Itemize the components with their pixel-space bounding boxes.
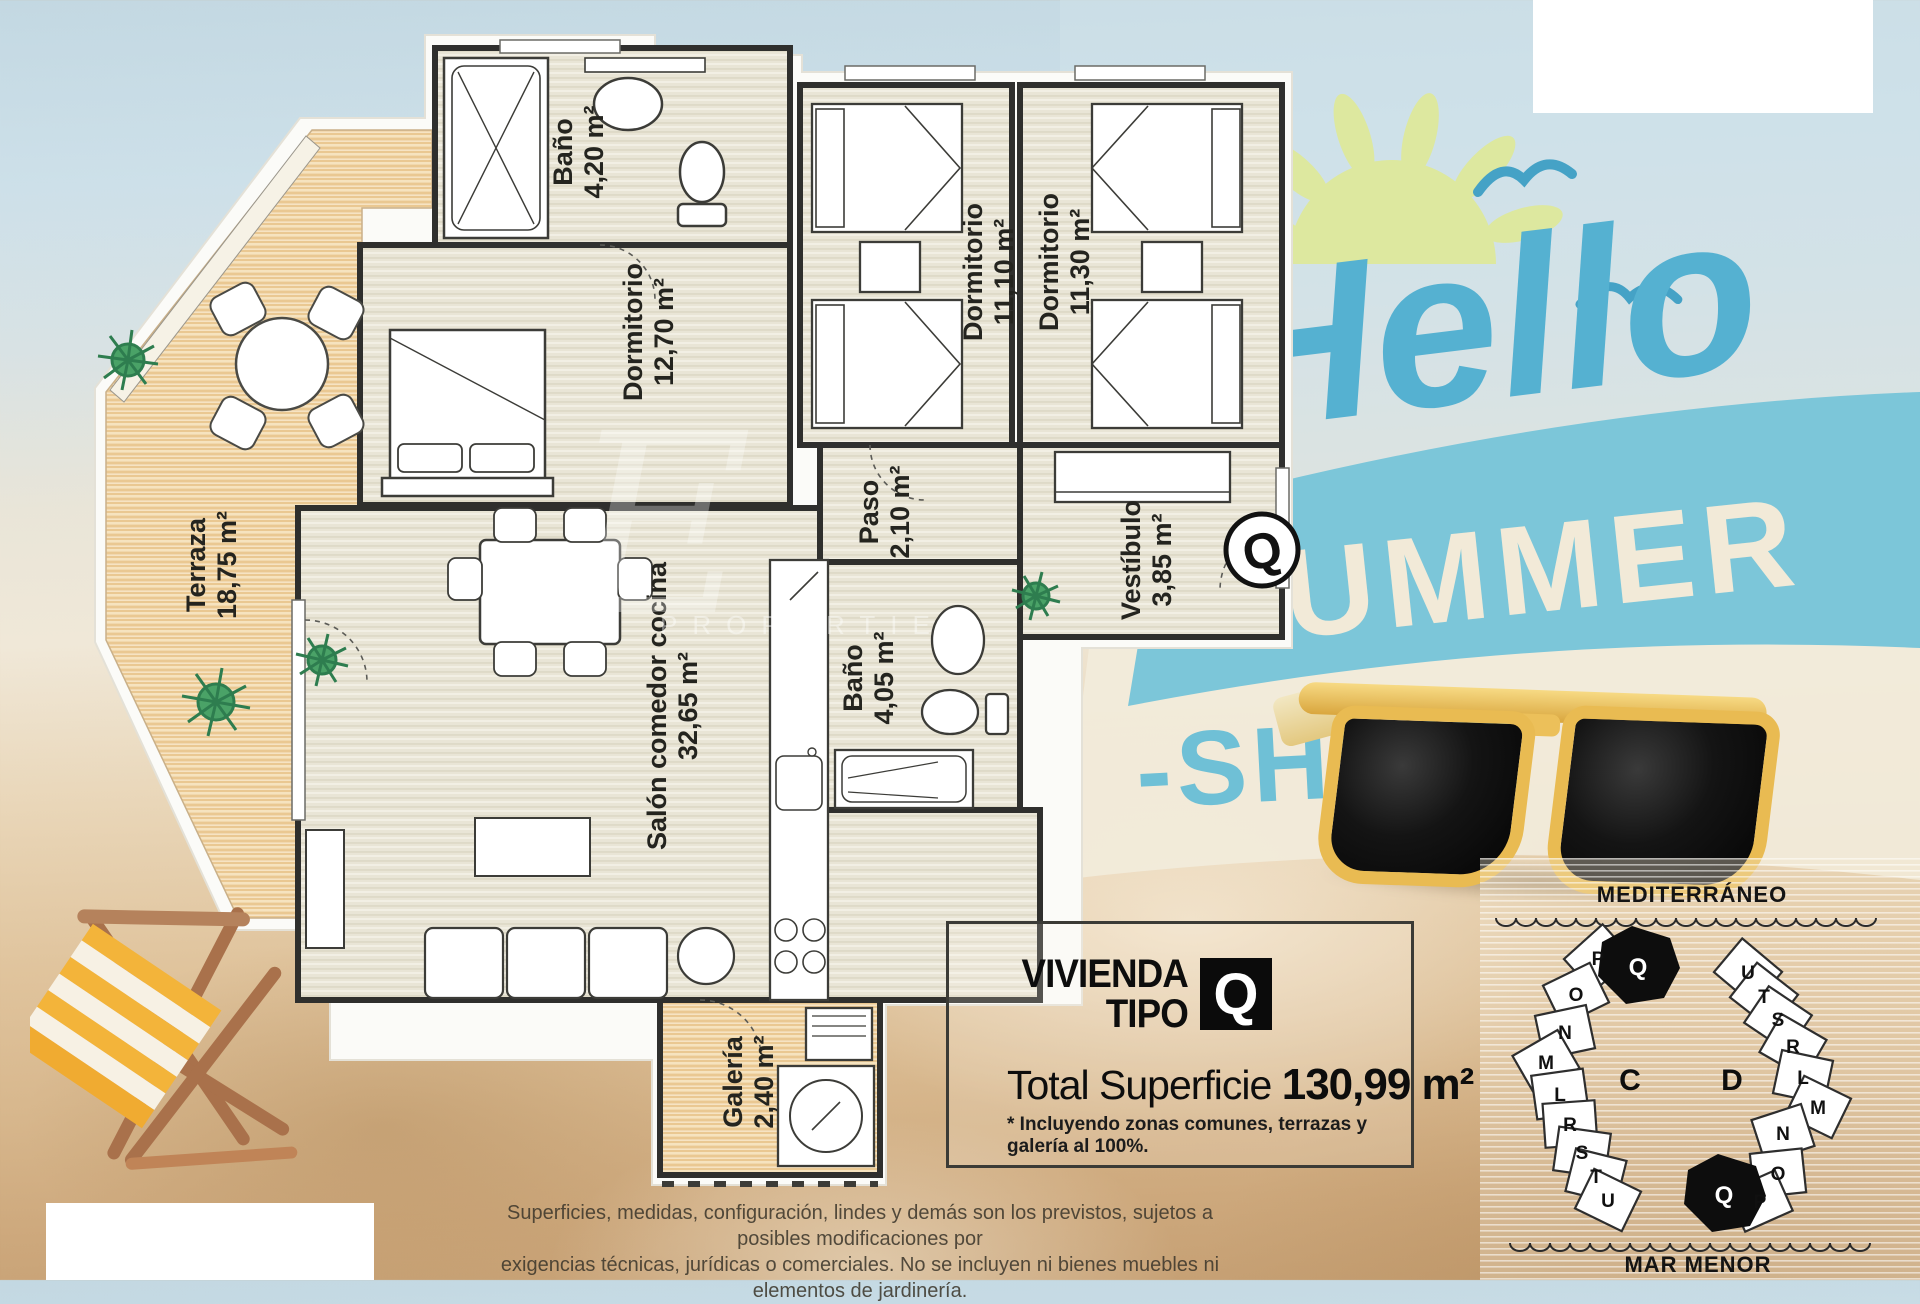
logo-placeholder-top-right: [1533, 0, 1873, 113]
svg-text:U: U: [1601, 1191, 1615, 1212]
disclaimer-line2: exigencias técnicas, jurídicas o comerci…: [470, 1252, 1250, 1304]
svg-text:S: S: [1772, 1010, 1785, 1031]
kitchen-counter: [770, 560, 828, 1000]
svg-text:N: N: [1558, 1023, 1572, 1044]
room-paso: [820, 445, 1020, 562]
svg-text:R: R: [1786, 1037, 1800, 1058]
sea-bottom-label: MAR MENOR: [1624, 1252, 1771, 1277]
logo-placeholder-bottom-left: [46, 1203, 374, 1280]
info-footnote: * Incluyendo zonas comunes, terrazas y g…: [1007, 1114, 1387, 1158]
svg-text:Q: Q: [1629, 954, 1648, 981]
label-bath1: Baño4,20 m²: [548, 105, 609, 198]
total-value: 130,99 m²: [1282, 1060, 1474, 1109]
unit-q-badge: Q: [1226, 514, 1298, 586]
beach-chair: [30, 858, 330, 1188]
label-galeria: Galería2,40 m²: [718, 1035, 779, 1128]
svg-text:U: U: [1741, 963, 1755, 984]
disclaimer-line1: Superficies, medidas, configuración, lin…: [470, 1200, 1250, 1252]
svg-text:R: R: [1563, 1115, 1577, 1136]
label-dorm1: Dormitorio12,70 m²: [618, 263, 679, 401]
dorm1-bed: [382, 330, 553, 496]
svg-text:M: M: [1810, 1098, 1826, 1119]
svg-text:Q: Q: [1715, 1182, 1734, 1209]
vivienda-tipo-row: VIVIENDA TIPO Q: [1007, 954, 1387, 1034]
label-vestibule: Vestíbulo3,85 m²: [1116, 500, 1177, 620]
label-dorm3: Dormitorio11,30 m²: [1034, 193, 1095, 331]
type-letter-badge: Q: [1200, 958, 1272, 1030]
vivienda-tipo-title: VIVIENDA TIPO: [1021, 954, 1187, 1034]
svg-text:T: T: [1590, 1167, 1602, 1188]
svg-text:P: P: [1754, 1192, 1767, 1213]
label-bath2: Baño4,05 m²: [838, 631, 899, 724]
building-c-label: C: [1619, 1064, 1641, 1097]
svg-text:P: P: [1592, 949, 1605, 970]
disclaimer: Superficies, medidas, configuración, lin…: [470, 1200, 1250, 1304]
vivienda-line: VIVIENDA: [1021, 954, 1187, 994]
svg-text:M: M: [1538, 1053, 1554, 1074]
label-terraza: Terraza18,75 m²: [181, 511, 242, 619]
svg-text:O: O: [1569, 985, 1584, 1006]
tipo-line: TIPO: [1021, 994, 1187, 1034]
svg-text:N: N: [1776, 1124, 1790, 1145]
total-superficie: Total Superficie 130,99 m²: [1007, 1060, 1387, 1110]
sea-top-label: MEDITERRÁNEO: [1597, 882, 1787, 907]
svg-text:T: T: [1758, 987, 1770, 1008]
site-plan: MEDITERRÁNEO Q P O N M L R S T U: [1480, 858, 1920, 1280]
info-box: VIVIENDA TIPO Q Total Superficie 130,99 …: [946, 921, 1414, 1168]
vestibule-closet: [1055, 452, 1230, 502]
chair-canvas: [30, 924, 221, 1128]
svg-text:O: O: [1771, 1164, 1786, 1185]
svg-text:S: S: [1576, 1143, 1589, 1164]
svg-text:L: L: [1554, 1085, 1566, 1106]
svg-text:L: L: [1797, 1068, 1809, 1089]
building-d-label: D: [1721, 1064, 1743, 1097]
label-dorm2: Dormitorio11,10 m²: [958, 203, 1019, 341]
total-label: Total Superficie: [1007, 1062, 1271, 1108]
